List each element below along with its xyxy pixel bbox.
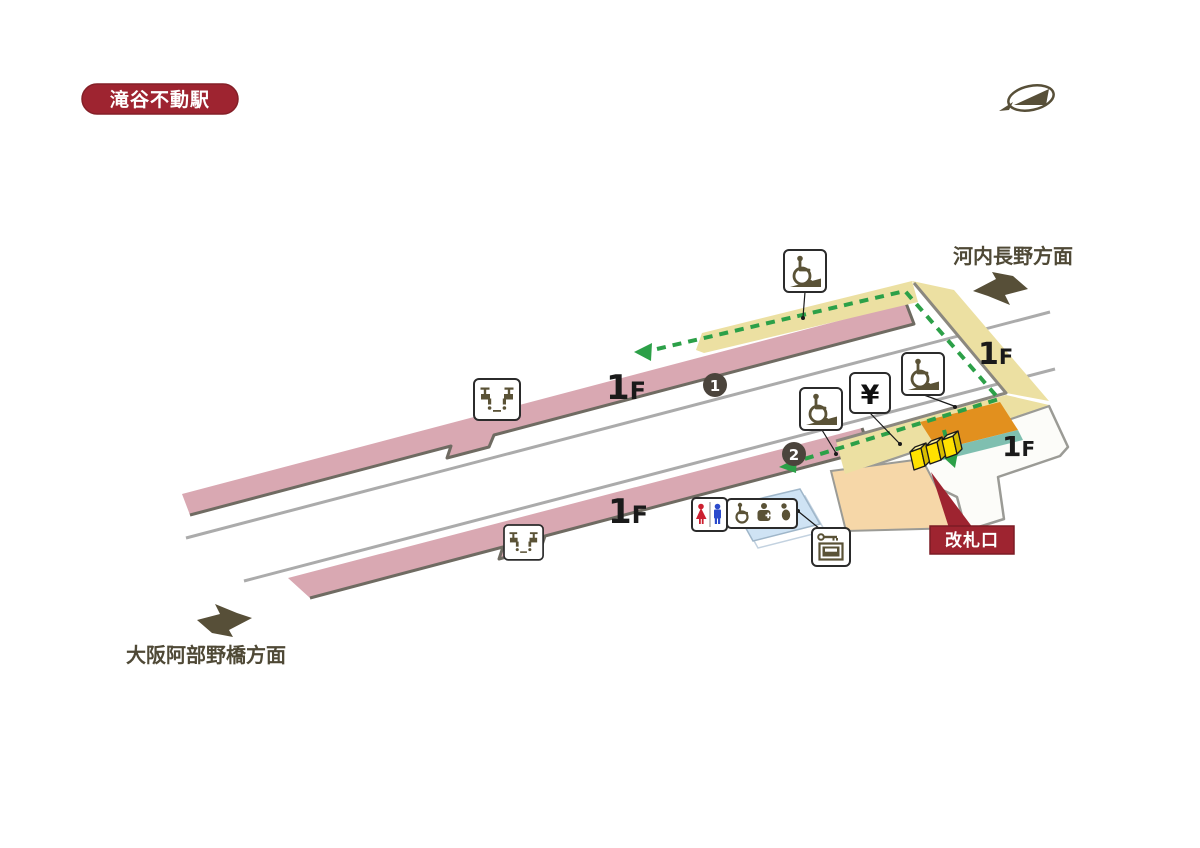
direction-label-osaka-abenobashi: 大阪阿部野橋方面 xyxy=(126,643,286,667)
wheelchair-ramp-icon xyxy=(784,250,826,292)
station-map-page: 改札口 ¥ xyxy=(0,0,1200,848)
direction-label-kawachinagano: 河内長野方面 xyxy=(953,244,1073,268)
wheelchair-ramp-icon xyxy=(902,353,944,395)
fare-machine-icon: ¥ xyxy=(850,373,890,413)
track-number-2: 2 xyxy=(782,442,806,466)
track-number-1: 1 xyxy=(703,373,727,397)
station-name: 滝谷不動駅 xyxy=(110,88,210,111)
direction-arrow-osaka-abenobashi xyxy=(197,604,252,637)
multipurpose-toilet-icon xyxy=(727,499,797,528)
railway-logo xyxy=(999,81,1056,114)
restroom-icon xyxy=(692,498,727,531)
drinking-fountain-icon xyxy=(474,379,520,420)
coin-locker-icon xyxy=(812,528,850,566)
station-name-badge: 滝谷不動駅 xyxy=(82,84,238,114)
direction-arrow-kawachinagano xyxy=(973,272,1028,305)
route-arrowhead-platform1 xyxy=(634,343,652,361)
floor-label-ramp: 1F xyxy=(978,337,1013,372)
track-number-1-label: 1 xyxy=(710,377,720,395)
gate-callout-label: 改札口 xyxy=(945,530,999,551)
station-map: 改札口 ¥ xyxy=(0,0,1200,848)
track-number-2-label: 2 xyxy=(789,446,799,464)
drinking-fountain-icon xyxy=(504,525,543,560)
wheelchair-ramp-icon xyxy=(800,388,842,430)
yen-symbol: ¥ xyxy=(861,380,880,411)
